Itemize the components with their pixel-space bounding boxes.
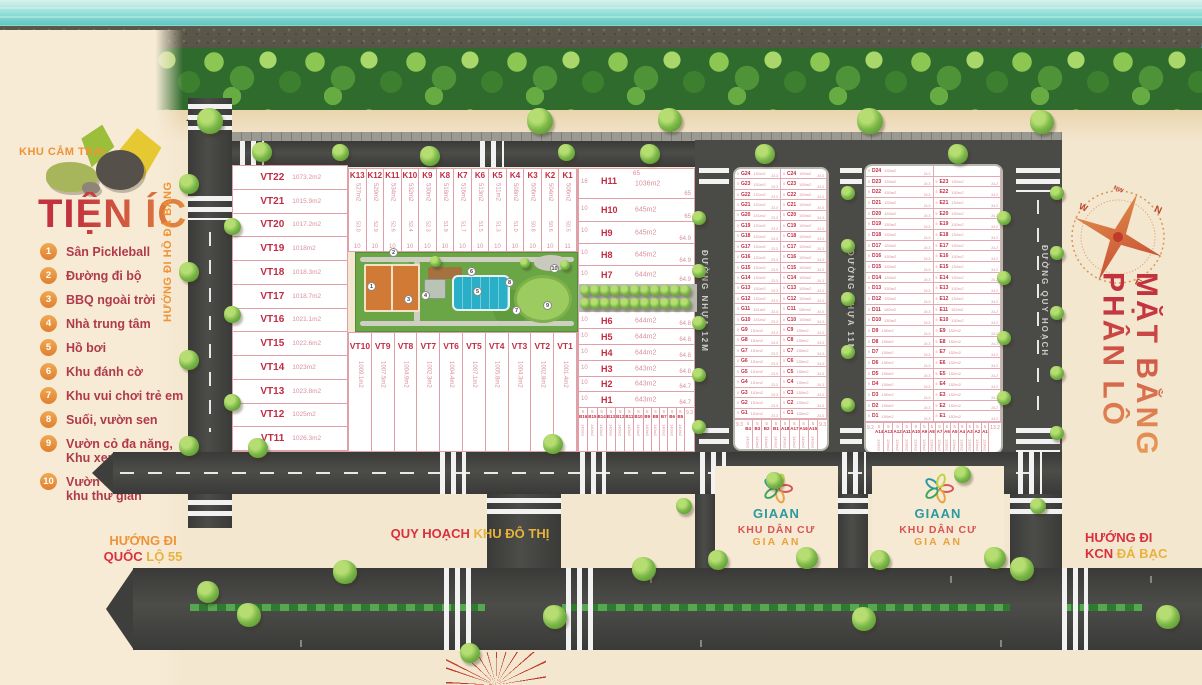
- lot-area: 150m2: [884, 264, 896, 269]
- lot-strip: VT61004.4m2: [440, 333, 463, 451]
- tree: [708, 550, 728, 570]
- lot-length: 51.3: [495, 221, 501, 232]
- lot-area: 150m2: [884, 211, 896, 216]
- lot-id: G16: [741, 254, 750, 260]
- lot-id: B16: [579, 414, 587, 419]
- lot-cell: 5A1139m2: [982, 423, 990, 452]
- lot-area: 1021.1m2: [292, 316, 321, 323]
- plan-title-line2: PHÂN LÔ: [1096, 272, 1130, 487]
- lot-area: 152m2: [949, 328, 961, 333]
- lot-length: 50.6: [547, 221, 553, 232]
- lot-length: 51.9: [442, 221, 448, 232]
- lot-length: 52.3: [424, 221, 430, 232]
- lot-width: 10: [419, 244, 436, 250]
- lot-cell: 5E15152m224.2: [934, 262, 1002, 272]
- lot-width: 5: [936, 361, 938, 365]
- lot-id: C9: [787, 327, 793, 333]
- lot-id: VT16: [233, 314, 292, 325]
- lot-row: VT131023.8m2: [233, 380, 347, 404]
- lot-area: 140m2: [670, 424, 675, 436]
- amenity-label: Hồ bơi: [66, 339, 106, 355]
- lot-id: B5: [677, 414, 684, 419]
- lot-cell: 5G23151m223.3: [735, 179, 781, 188]
- lot-length: 23.3: [771, 341, 778, 345]
- lot-area: 152m2: [949, 382, 961, 387]
- lot-cell: 5E18152m224.2: [934, 230, 1002, 240]
- amenity-label: BBQ ngoài trời: [66, 291, 155, 307]
- grid-row: 5D21150m224.35E21152m224.2: [866, 198, 1001, 209]
- lot-strip: K9530m252.310: [419, 169, 437, 251]
- lot-strip: VT71002.3m2: [417, 333, 440, 451]
- lot-area: 140m2: [608, 424, 613, 436]
- lot-length: 23.3: [771, 227, 778, 231]
- lot-id: H6: [601, 316, 613, 326]
- lot-strip: K1506m250.511: [559, 169, 577, 251]
- lot-length: 24.2: [991, 204, 998, 208]
- lot-id: D5: [872, 371, 878, 377]
- lot-length: 23.3: [771, 372, 778, 376]
- lot-id: K13: [349, 171, 366, 180]
- tree: [692, 316, 706, 330]
- park-marker: 3: [404, 295, 413, 304]
- lot-id: A6: [944, 429, 951, 434]
- lot-id: C3: [787, 390, 793, 396]
- lot-id: G21: [741, 202, 750, 208]
- tree: [333, 560, 357, 584]
- lot-cell: 5D10150m224.3: [866, 315, 934, 325]
- lot-area: 151m2: [751, 400, 763, 405]
- lot-width: 10: [581, 380, 588, 386]
- lot-area: 150m2: [799, 275, 811, 280]
- lot-id: A9: [921, 429, 928, 434]
- lot-width: 5: [868, 361, 870, 365]
- lot-id: E23: [939, 179, 948, 185]
- lot-length: 64.8: [679, 321, 691, 327]
- amenity-label: Đường đi bộ: [66, 267, 142, 283]
- lot-cell: 5A15140m2: [809, 420, 818, 449]
- lot-width: 10: [581, 250, 588, 256]
- lot-area: 151m2: [753, 265, 765, 270]
- lot-cell: 5D1150m224.3: [866, 411, 934, 421]
- lot-cell: 5D16150m224.3: [866, 251, 934, 261]
- lot-id: C23: [787, 181, 796, 187]
- tree: [179, 350, 199, 370]
- lot-area: 1017.2m2: [292, 221, 321, 228]
- lot-area: 152m2: [951, 275, 963, 280]
- lot-cell: 5E2152m224.2: [934, 401, 1002, 411]
- lot-strip: K7516m251.710: [454, 169, 472, 251]
- lot-area: 140m2: [627, 424, 632, 436]
- lot-id: H9: [601, 228, 613, 238]
- lot-area: 1023m2: [292, 364, 316, 371]
- lot-cell: 5G20151m223.3: [735, 211, 781, 220]
- lot-id: VT6: [440, 341, 462, 351]
- label-part-b: KHU ĐÔ THỊ: [474, 526, 550, 541]
- grid-row: 5D10150m224.35E10152m224.2: [866, 315, 1001, 326]
- grid-row: 5D11150m224.35E11152m224.2: [866, 305, 1001, 316]
- crosswalk: [440, 452, 466, 494]
- grid-row: 5G16151m223.35C16150m224.3: [735, 252, 827, 262]
- lot-cell: 5B13140m2: [607, 408, 616, 451]
- lot-width: 5: [737, 370, 739, 374]
- lot-length: 50.8: [530, 221, 536, 232]
- lot-id: B11: [625, 414, 633, 419]
- lot-area: 152m2: [951, 211, 963, 216]
- tree: [870, 550, 890, 570]
- tree: [197, 108, 223, 134]
- lot-length: 23.3: [771, 174, 778, 178]
- tree: [658, 108, 682, 132]
- lot-id: D22: [872, 189, 881, 195]
- tree: [948, 144, 968, 164]
- lot-length: 24.3: [817, 216, 824, 220]
- lot-cell: 5E13152m224.2: [934, 283, 1002, 293]
- lot-area: 150m2: [884, 200, 896, 205]
- lot-id: K7: [454, 171, 471, 180]
- lot-area: 152m2: [951, 254, 963, 259]
- lot-id: VT3: [509, 341, 531, 351]
- lot-id: E11: [939, 307, 948, 313]
- lot-area: 644m2: [635, 333, 656, 340]
- lot-cell: 5D9150m224.3: [866, 326, 934, 336]
- lot-area: 140m2: [581, 424, 586, 436]
- lot-row: 10H3643m264.8: [579, 361, 694, 377]
- lot-cell: 5A17140m2: [790, 420, 799, 449]
- gia-an-logo: [920, 474, 956, 504]
- amenity-label: Khu vui chơi trẻ em: [66, 387, 183, 403]
- lot-width: 5: [783, 411, 785, 415]
- lot-area: 140m2: [792, 436, 797, 448]
- lot-cell: 5A18140m2: [781, 420, 790, 449]
- lot-length: 24.3: [924, 225, 931, 229]
- lot-cell: 5E4152m224.2: [934, 379, 1002, 389]
- direction-line2b: LỘ 55: [146, 549, 182, 564]
- lot-length: 24.2: [991, 246, 998, 250]
- lot-cell: 5C24150m224.3: [781, 169, 827, 178]
- lot-length: 24.3: [924, 268, 931, 272]
- lot-row: 10H8645m264.9: [579, 244, 694, 266]
- lot-width: 5: [936, 393, 938, 397]
- lot-width: 5: [737, 203, 739, 207]
- lot-id: H11: [601, 176, 617, 186]
- lot-length: 24.2: [991, 193, 998, 197]
- lot-id: E3: [939, 392, 945, 398]
- lot-width: 5: [936, 265, 938, 269]
- lot-id: H8: [601, 250, 613, 260]
- grid-row: 5G24151m223.35C24150m224.3: [735, 169, 827, 179]
- lot-length: 52.6: [389, 221, 395, 232]
- direction-line2a: QUỐC: [104, 549, 143, 564]
- lot-cell: 5E17152m224.2: [934, 241, 1002, 251]
- lot-width: 5: [936, 212, 938, 216]
- lot-id: D13: [872, 285, 881, 291]
- lot-id: C13: [787, 285, 796, 291]
- grid-row: 5D17150m224.35E17152m224.2: [866, 241, 1001, 252]
- lot-width: 10: [581, 271, 588, 277]
- lot-length: 24.3: [817, 331, 824, 335]
- lot-id: VT10: [349, 341, 371, 351]
- lot-area: 644m2: [635, 317, 656, 324]
- lot-cell: 5B6140m2: [668, 408, 676, 451]
- lot-cell: 5E19152m224.2: [934, 219, 1002, 229]
- lot-id: G3: [741, 390, 748, 396]
- lot-width: 10: [489, 244, 506, 250]
- lot-id: B12: [616, 414, 624, 419]
- park-marker: 4: [421, 291, 430, 300]
- lot-area: 139m2: [877, 439, 882, 451]
- lot-width: 5: [783, 213, 785, 217]
- lot-area: 139m2: [937, 439, 942, 451]
- tree: [676, 498, 692, 514]
- lot-id: G18: [741, 233, 750, 239]
- lot-length: 24.3: [924, 172, 931, 176]
- lot-cell: 5A3139m2: [967, 423, 975, 452]
- lot-cell: 5E9152m224.2: [934, 326, 1002, 336]
- tree: [1010, 557, 1034, 581]
- lot-area: 152m2: [951, 307, 963, 312]
- lot-strip: K13527m253.010: [349, 169, 367, 251]
- grid-row: 5D24150m224.3: [866, 166, 1001, 177]
- lot-area: 1036m2: [635, 180, 660, 187]
- lot-area: 150m2: [884, 222, 896, 227]
- tree: [558, 144, 575, 161]
- lot-length: 24.2: [991, 406, 998, 410]
- vt-bottom-block: VT101009.1m2VT91007.5m2VT81004.9m2VT7100…: [348, 332, 578, 452]
- lot-length: 24.3: [817, 299, 824, 303]
- lot-width: 5: [737, 182, 739, 186]
- lot-strip: K5511m251.310: [489, 169, 507, 251]
- lot-area: 150m2: [881, 414, 893, 419]
- lot-cell: 5D19150m224.3: [866, 219, 934, 229]
- lot-width: 10: [581, 206, 588, 212]
- lawn-garden: [514, 275, 572, 323]
- lot-id: G9: [741, 327, 748, 333]
- lot-width: 5: [936, 201, 938, 205]
- tree: [1050, 366, 1064, 380]
- lot-width: 5: [737, 338, 739, 342]
- lot-area: 150m2: [881, 328, 893, 333]
- lot-cell: 5C8150m224.3: [781, 336, 827, 345]
- grid-row: 5G19151m223.35C19150m224.3: [735, 221, 827, 231]
- lot-row: VT201017.2m2: [233, 214, 347, 238]
- lot-length: 64.8: [679, 353, 691, 359]
- lot-row: 10H2643m264.7: [579, 377, 694, 392]
- lot-width: 5: [737, 172, 739, 176]
- lot-width: 5: [737, 255, 739, 259]
- road-centerline: [209, 232, 211, 432]
- lot-row: VT141023m2: [233, 356, 347, 380]
- tree: [997, 391, 1011, 405]
- direction-label-kcn-da-bac: HƯỚNG ĐI KCN ĐÁ BẠC: [1085, 530, 1195, 563]
- lot-width: 5: [936, 254, 938, 258]
- lot-width: 5: [783, 203, 785, 207]
- grid-row: 5D3150m224.35E3152m224.2: [866, 390, 1001, 401]
- lot-width: 5: [737, 234, 739, 238]
- lot-cell: 5E21152m224.2: [934, 198, 1002, 208]
- lot-id: G14: [741, 275, 750, 281]
- lot-width: 10: [581, 396, 588, 402]
- lot-width: 10: [402, 244, 419, 250]
- lot-length: 24.3: [817, 341, 824, 345]
- lot-cell: 5G2151m223.3: [735, 398, 781, 407]
- lot-area: 139m2: [922, 439, 927, 451]
- amenity-number: 2: [40, 267, 57, 284]
- lot-area: 150m2: [884, 190, 896, 195]
- lot-length: 23.3: [771, 331, 778, 335]
- lot-length: 23.3: [771, 404, 778, 408]
- lot-length: 24.2: [991, 385, 998, 389]
- lot-length: 51.7: [459, 221, 465, 232]
- grid-row: 5D14150m224.35E14152m224.2: [866, 273, 1001, 284]
- lot-id: H2: [601, 379, 613, 389]
- lot-id: VT9: [372, 341, 394, 351]
- lot-width: 10: [507, 244, 524, 250]
- lot-cell: 5E3152m224.2: [934, 390, 1002, 400]
- lot-area: 140m2: [746, 436, 751, 448]
- grid-row: 5G23151m223.35C23150m224.3: [735, 179, 827, 189]
- lot-width: 10: [581, 365, 588, 371]
- lot-cell: 5D12150m224.3: [866, 294, 934, 304]
- lot-id: A4: [959, 429, 966, 434]
- lot-cell: 5D2150m224.3: [866, 401, 934, 411]
- lot-row: VT181018.3m2: [233, 261, 347, 285]
- lot-row: VT161021.1m2: [233, 309, 347, 333]
- lot-strip: K11534m252.610: [384, 169, 402, 251]
- lot-area: 1018.7m2: [292, 293, 321, 300]
- lot-id: G8: [741, 337, 748, 343]
- amenity-item: 6Khu đánh cờ: [40, 363, 190, 380]
- lot-cell: 5A16140m2: [800, 420, 809, 449]
- lot-id: D19: [872, 221, 881, 227]
- lot-id: VT4: [486, 341, 508, 351]
- lot-area: 150m2: [799, 182, 811, 187]
- grid-row: 5D15150m224.35E15152m224.2: [866, 262, 1001, 273]
- lot-length: 24.2: [991, 342, 998, 346]
- lot-width: 5: [936, 308, 938, 312]
- lot-width: 5: [936, 318, 938, 322]
- lot-area: 527m2: [354, 183, 360, 201]
- amenity-number: 8: [40, 411, 57, 428]
- lot-cell: 5G19151m223.3: [735, 221, 781, 230]
- amenity-label: Suối, vườn sen: [66, 411, 158, 427]
- tree: [420, 146, 440, 166]
- lot-area: 150m2: [881, 392, 893, 397]
- amenity-label: Sân Pickleball: [66, 243, 150, 259]
- lot-area: 1018m2: [292, 245, 316, 252]
- lot-id: VT12: [233, 409, 292, 420]
- lot-strip: VT31004.3m2: [509, 333, 532, 451]
- grid-row: 5G9151m223.35C9150m224.3: [735, 325, 827, 335]
- tree: [680, 285, 691, 296]
- lot-length: 24.3: [817, 247, 824, 251]
- grid-row: 5D5150m224.35E5152m224.2: [866, 369, 1001, 380]
- lot-width: 5: [868, 244, 870, 248]
- lot-id: E12: [939, 296, 948, 302]
- park-marker: 7: [512, 306, 521, 315]
- lot-cell: 5C6150m224.3: [781, 357, 827, 366]
- lot-width: 5: [783, 245, 785, 249]
- lot-cell: 5G17151m223.3: [735, 242, 781, 251]
- lot-length: 24.3: [924, 396, 931, 400]
- lot-width: 5: [868, 350, 870, 354]
- label-quy-hoach-khu-do-thi: QUY HOẠCH KHU ĐÔ THỊ: [390, 526, 550, 542]
- lot-area: 152m2: [951, 190, 963, 195]
- crosswalk: [444, 568, 472, 650]
- lot-area: 151m2: [753, 234, 765, 239]
- lot-width: 10: [581, 228, 588, 234]
- lot-length: 23.3: [771, 362, 778, 366]
- lot-length: 23.3: [771, 352, 778, 356]
- lot-area: 1004.3m2: [516, 361, 522, 388]
- lot-area: 140m2: [773, 436, 778, 448]
- lot-width: 5: [783, 307, 785, 311]
- road-median: [562, 604, 1010, 611]
- lot-id: B13: [607, 414, 615, 419]
- lot-cell: 5B10140m2: [634, 408, 643, 451]
- lot-cell: 5C22150m224.3: [781, 190, 827, 199]
- lot-cell: 5D18150m224.3: [866, 230, 934, 240]
- edge-length: 9.3: [818, 420, 827, 449]
- tree: [179, 174, 199, 194]
- lot-id: C22: [787, 192, 796, 198]
- park-marker: 10: [550, 264, 559, 273]
- lot-id: C14: [787, 275, 796, 281]
- lot-id: A11: [903, 429, 911, 434]
- grid-row: 5D20150m224.35E20152m224.2: [866, 209, 1001, 220]
- lot-width: 5: [868, 308, 870, 312]
- lot-area: 150m2: [799, 234, 811, 239]
- lot-length: 24.3: [817, 372, 824, 376]
- lot-cell: 5D7150m224.3: [866, 347, 934, 357]
- tree: [997, 211, 1011, 225]
- lot-id: E22: [939, 189, 948, 195]
- lot-id: G15: [741, 265, 750, 271]
- lot-id: C11: [787, 306, 796, 312]
- lot-area: 150m2: [796, 328, 808, 333]
- lot-area: 139m2: [967, 439, 972, 451]
- lot-width: 10: [454, 244, 471, 250]
- lot-cell: 5C11150m224.3: [781, 304, 827, 313]
- lot-length: 23.3: [771, 247, 778, 251]
- tree: [237, 603, 261, 627]
- lot-width: 10: [581, 333, 588, 339]
- gia-an-subtitle: KHU DÂN CƯ: [715, 524, 838, 536]
- amenity-number: 5: [40, 339, 57, 356]
- lot-length: 24.3: [924, 321, 931, 325]
- lot-cell: 5D8150m224.3: [866, 337, 934, 347]
- lot-length: 64.8: [679, 337, 691, 343]
- lot-id: VT19: [233, 243, 292, 254]
- lot-area: 518m2: [442, 183, 448, 201]
- lot-area: 152m2: [949, 350, 961, 355]
- lot-length: 23.3: [771, 258, 778, 262]
- lot-area: 150m2: [799, 317, 811, 322]
- lot-width: 5: [936, 350, 938, 354]
- lot-id: VT18: [233, 267, 292, 278]
- lot-area: 152m2: [951, 264, 963, 269]
- lot-length: 24.3: [924, 236, 931, 240]
- lot-length: 24.3: [924, 193, 931, 197]
- lot-strip: VT51007.1m2: [463, 333, 486, 451]
- lot-length: 23.3: [771, 206, 778, 210]
- park-marker: 2: [389, 248, 398, 257]
- lot-id: VT17: [233, 291, 292, 302]
- lot-length: 24.3: [817, 414, 824, 418]
- lot-area: 532m2: [407, 183, 413, 201]
- amenity-number: 6: [40, 363, 57, 380]
- lot-width: 5: [868, 340, 870, 344]
- lot-length: 23.3: [771, 216, 778, 220]
